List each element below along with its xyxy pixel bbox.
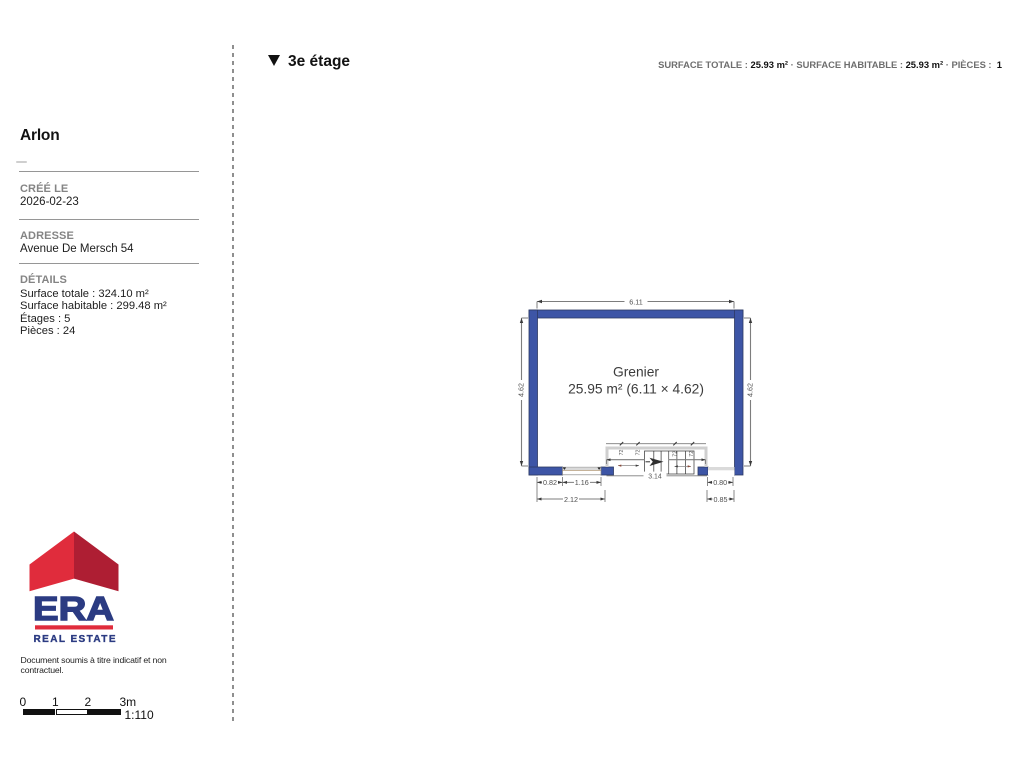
svg-text:72: 72 (689, 451, 695, 457)
svg-text:25.95 m² (6.11 × 4.62): 25.95 m² (6.11 × 4.62) (568, 381, 704, 396)
svg-text:0.85: 0.85 (714, 495, 728, 504)
svg-text:3.14: 3.14 (648, 473, 662, 480)
svg-text:2.12: 2.12 (564, 495, 578, 504)
svg-text:72: 72 (636, 450, 642, 456)
svg-text:ERA: ERA (33, 591, 114, 628)
svg-text:4.62: 4.62 (516, 383, 525, 397)
svg-text:Grenier: Grenier (613, 365, 659, 380)
svg-text:0.82: 0.82 (543, 478, 557, 487)
svg-text:4.62: 4.62 (745, 383, 754, 397)
svg-text:6.11: 6.11 (629, 297, 642, 306)
svg-text:1.16: 1.16 (575, 478, 589, 487)
svg-text:REAL ESTATE: REAL ESTATE (34, 634, 116, 645)
svg-text:72: 72 (672, 451, 678, 457)
svg-text:72: 72 (619, 450, 625, 456)
svg-text:0.80: 0.80 (713, 478, 727, 487)
